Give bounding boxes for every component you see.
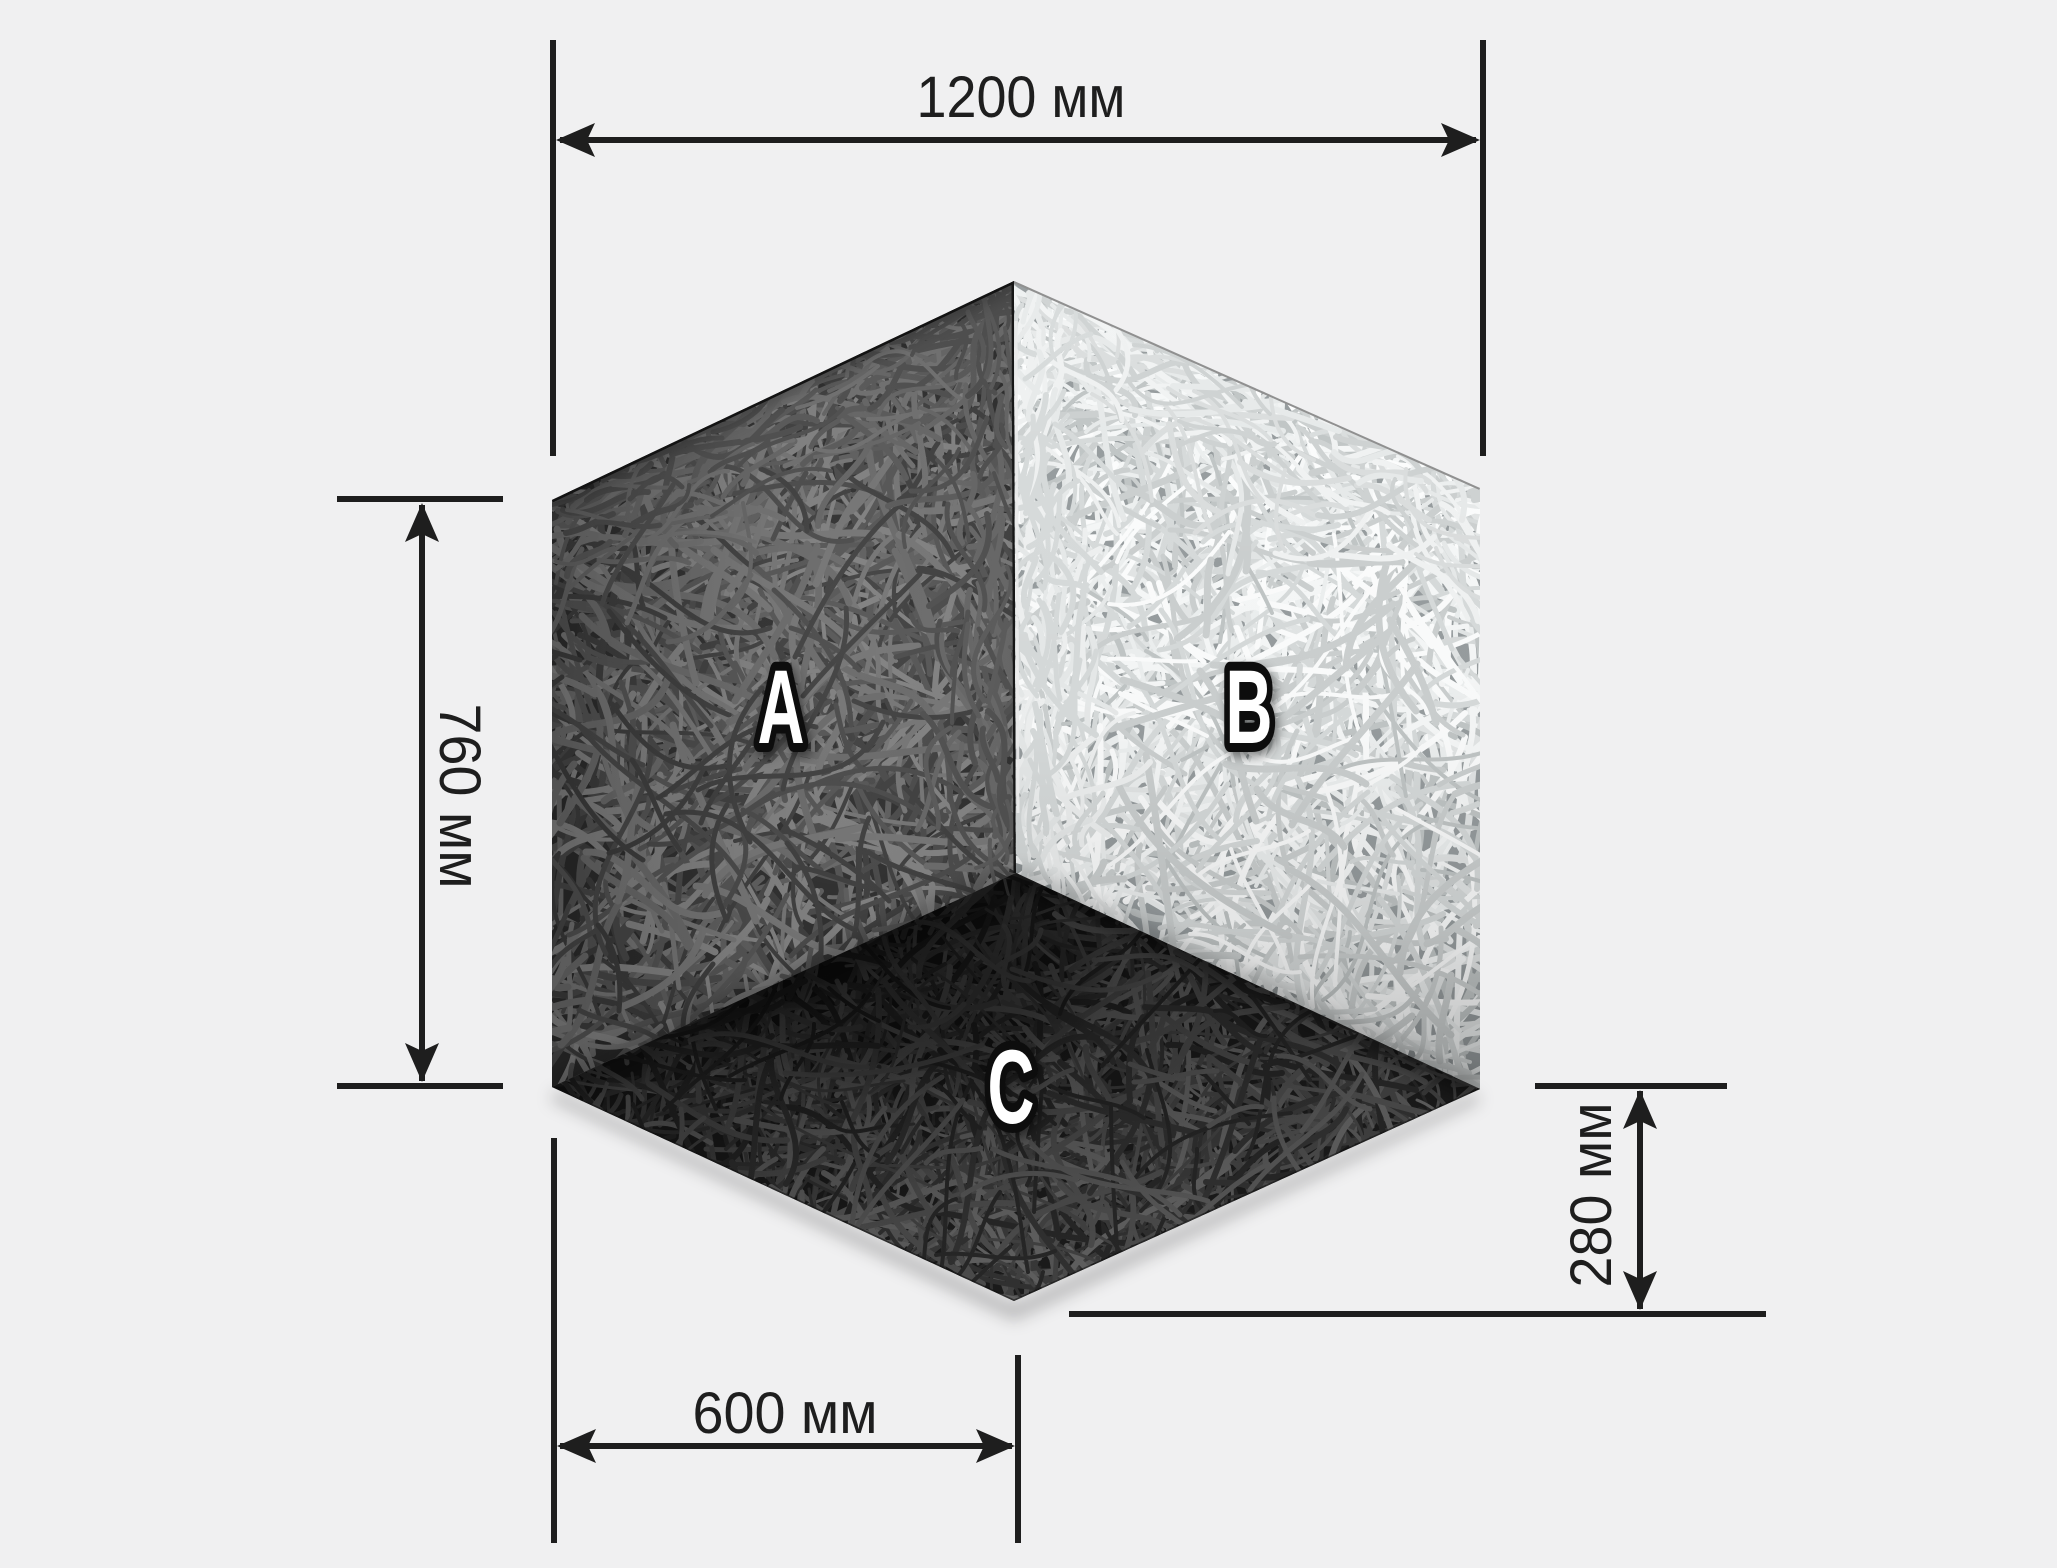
svg-text:B: B bbox=[1225, 648, 1272, 766]
svg-text:600 мм: 600 мм bbox=[693, 1381, 878, 1446]
svg-text:1200 мм: 1200 мм bbox=[917, 65, 1126, 130]
svg-text:A: A bbox=[757, 648, 804, 766]
svg-text:C: C bbox=[987, 1028, 1034, 1146]
svg-text:280 мм: 280 мм bbox=[1559, 1103, 1624, 1288]
svg-text:760 мм: 760 мм bbox=[427, 704, 492, 889]
